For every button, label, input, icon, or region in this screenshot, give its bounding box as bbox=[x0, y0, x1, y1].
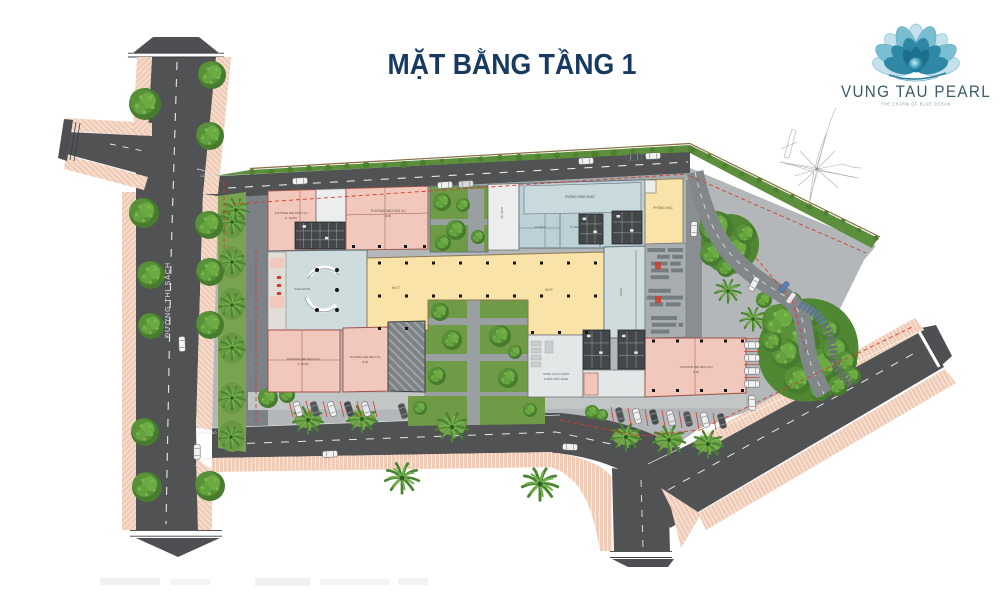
svg-text:THE CHARM OF BLUE OCEAN: THE CHARM OF BLUE OCEAN bbox=[881, 102, 951, 107]
svg-text:LỐI RA VÀO: LỐI RA VÀO bbox=[197, 430, 216, 435]
svg-text:VUNG TAU PEARL: VUNG TAU PEARL bbox=[841, 82, 991, 101]
svg-text:THƯƠNG MẠI DỊCH VỤ: THƯƠNG MẠI DỊCH VỤ bbox=[287, 357, 320, 361]
svg-text:SẢNH: SẢNH bbox=[618, 288, 623, 296]
svg-text:P. NGỦ: P. NGỦ bbox=[570, 224, 579, 229]
svg-text:(1 THÁP): (1 THÁP) bbox=[285, 216, 297, 220]
svg-text:(1 THÁP): (1 THÁP) bbox=[297, 362, 309, 366]
svg-text:KIOT: KIOT bbox=[545, 288, 553, 292]
svg-text:THƯƠNG MẠI DỊCH VỤ: THƯƠNG MẠI DỊCH VỤ bbox=[350, 355, 381, 359]
svg-text:THƯƠNG MẠI DỊCH VỤ: THƯƠNG MẠI DỊCH VỤ bbox=[370, 209, 406, 213]
svg-text:PHÒNG SINH HOẠT: PHÒNG SINH HOẠT bbox=[565, 194, 595, 199]
svg-text:ĐƯỜNG THI SÁCH: ĐƯỜNG THI SÁCH bbox=[163, 262, 172, 338]
svg-text:SẢNH GIAO NHẬN: SẢNH GIAO NHẬN bbox=[543, 371, 569, 376]
svg-text:THƯƠNG MẠI DỊCH VỤ: THƯƠNG MẠI DỊCH VỤ bbox=[680, 365, 713, 369]
svg-text:SẢNH ĐÓN: SẢNH ĐÓN bbox=[294, 286, 310, 291]
svg-text:& BỐC DỠ HÀNG: & BỐC DỠ HÀNG bbox=[544, 376, 569, 381]
svg-text:P. NGỦ: P. NGỦ bbox=[535, 224, 544, 229]
svg-text:MẶT BẰNG TẦNG 1: MẶT BẰNG TẦNG 1 bbox=[388, 47, 637, 81]
svg-text:(1 B): (1 B) bbox=[693, 370, 699, 374]
svg-text:(1 B): (1 B) bbox=[385, 214, 392, 218]
svg-text:VỆ SINH: VỆ SINH bbox=[499, 207, 504, 219]
svg-text:PHÒNG HỌC: PHÒNG HỌC bbox=[653, 205, 673, 210]
svg-text:KIOT: KIOT bbox=[392, 286, 400, 290]
svg-text:LỐI RA VÀO: LỐI RA VÀO bbox=[200, 173, 219, 178]
svg-text:(1 B): (1 B) bbox=[362, 360, 368, 364]
svg-text:THƯƠNG MẠI DỊCH VỤ: THƯƠNG MẠI DỊCH VỤ bbox=[275, 211, 308, 215]
